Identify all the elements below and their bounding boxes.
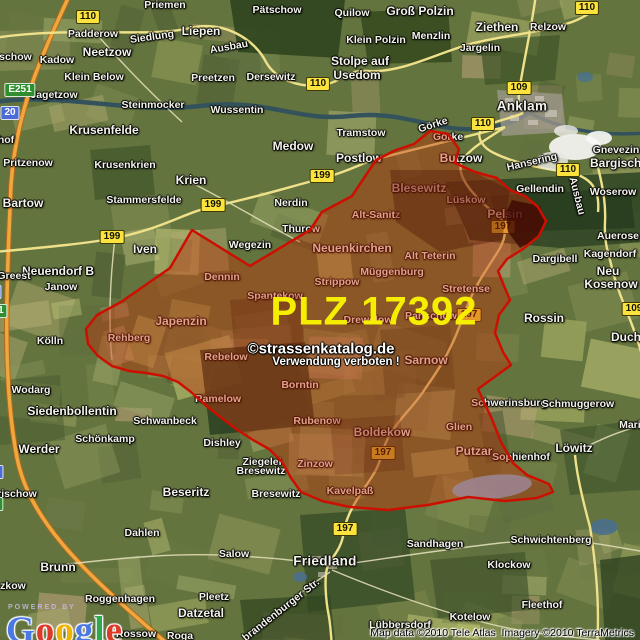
place-label: Butzow [440, 151, 483, 165]
place-label: Wegezin [229, 239, 271, 251]
place-label: Löwitz [555, 441, 592, 455]
place-label: Tramstow [336, 127, 385, 139]
place-label: Bargischow [590, 156, 640, 170]
google-logo-letter: g [75, 610, 95, 640]
google-logo-letter: e [106, 610, 123, 640]
place-label: Dennin [204, 271, 240, 283]
map-canvas[interactable]: PriemenPadderowSiedlungLiepenPätschowQui… [0, 0, 640, 640]
place-label: Ziethen [476, 20, 519, 34]
place-label: Wodarg [12, 384, 51, 396]
place-label: Priemen [144, 0, 185, 11]
labels-layer: PriemenPadderowSiedlungLiepenPätschowQui… [0, 0, 640, 640]
place-label: Neetzow [83, 45, 132, 59]
road-badge-197: 197 [371, 446, 396, 460]
place-label: Gellendin [516, 183, 564, 195]
google-logo-letter: G [6, 610, 36, 640]
place-label: Kadow [40, 54, 74, 66]
google-logo-letter: l [94, 610, 105, 640]
place-label: Ducherow [611, 330, 640, 344]
google-logo-letter: o [55, 610, 75, 640]
place-label: Jargelin [460, 42, 500, 54]
place-label: Iven [133, 242, 157, 256]
place-label: Ramelow [195, 393, 241, 405]
place-label: Schönkamp [75, 433, 135, 445]
place-label: Fleethof [522, 599, 563, 611]
place-label: Pritzenow [3, 157, 53, 169]
place-label: Krusenfelde [69, 123, 138, 137]
place-label: Bresewitz [251, 488, 300, 500]
place-label: Rehberg [108, 332, 151, 344]
place-label: Ausbau [567, 176, 588, 216]
place-label: Stretense [442, 283, 490, 295]
place-label: Steinmocker [121, 99, 184, 111]
place-label: rischow [0, 488, 37, 500]
place-label: Jagetzow [30, 89, 77, 101]
place-label: Werder [18, 442, 59, 456]
place-label: Relzow [530, 21, 566, 33]
place-label: Wussentin [211, 104, 264, 116]
place-label: zkow [0, 580, 26, 592]
place-label: Nerdin [274, 197, 307, 209]
road-badge-197: 197 [491, 220, 516, 234]
place-label: Stolpe auf [331, 54, 389, 68]
place-label: Borntin [281, 379, 318, 391]
road-badge-110: 110 [306, 77, 330, 91]
place-label: Pelsin [487, 207, 522, 221]
road-badge-E251: E251 [0, 304, 8, 318]
road-badge-110: 110 [575, 1, 599, 15]
road-badge-199: 199 [310, 169, 335, 183]
place-label: Schmuggerow [542, 398, 614, 410]
place-label: Spantekow [247, 290, 302, 302]
place-label: Neu [597, 264, 620, 278]
place-label: Glien [446, 421, 472, 433]
place-label: Auerose [597, 230, 639, 242]
place-label: Rubenow [293, 415, 340, 427]
place-label: Alt-Sanitz [352, 209, 400, 221]
place-label: Dahlen [124, 527, 159, 539]
road-badge-199: 199 [100, 230, 125, 244]
place-label: Preetzen [191, 72, 235, 84]
place-label: Anklam [497, 99, 548, 114]
google-logo-letter: o [36, 610, 56, 640]
place-label: Sophienhof [492, 451, 550, 463]
google-logo[interactable]: Google [6, 609, 123, 640]
place-label: Müggenburg [360, 266, 424, 278]
place-label: Medow [273, 139, 314, 153]
place-label: Datzetal [178, 606, 224, 620]
place-label: Groß Polzin [386, 4, 453, 18]
place-label: Salow [219, 548, 249, 560]
place-label: Klein Below [64, 71, 124, 83]
place-label: Schwerinsburg [471, 397, 547, 409]
place-label: Boldekow [354, 425, 411, 439]
place-label: brandenburger Str. [240, 576, 322, 640]
place-label: lschow [0, 51, 32, 63]
place-label: Lüskow [446, 194, 485, 206]
place-label: Schwichtenberg [510, 534, 591, 546]
place-label: Dishley [203, 437, 240, 449]
road-badge-E251: E251 [0, 497, 4, 511]
road-badge-109: 109 [622, 302, 640, 316]
place-label: Kagendorf [584, 248, 637, 260]
place-label: Siedlung [129, 28, 175, 46]
place-label: Menzlin [412, 30, 451, 42]
place-label: Siedenbollentin [27, 404, 116, 418]
place-label: Ausbau [209, 38, 249, 57]
road-badge-110: 110 [471, 117, 495, 131]
place-label: Woserow [590, 186, 636, 198]
road-badge-20: 20 [0, 465, 4, 479]
place-label: Krien [176, 173, 207, 187]
place-label: Bartow [3, 196, 44, 210]
place-label: Thurow [282, 223, 320, 235]
road-badge-20: 20 [0, 285, 2, 299]
place-label: Klein Polzin [346, 34, 406, 46]
road-badge-110: 110 [76, 10, 100, 24]
road-badge-20: 20 [0, 106, 19, 120]
place-label: Liepen [182, 24, 221, 38]
place-label: Pätschow [252, 4, 301, 16]
place-label: Friedland [293, 554, 356, 569]
place-label: Panschow [405, 310, 457, 322]
place-label: Beseritz [163, 485, 210, 499]
place-label: Usedom [333, 68, 380, 82]
place-label: Sandhagen [407, 538, 464, 550]
place-label: Putzar [456, 444, 493, 458]
place-label: Neuendorf B [22, 264, 94, 278]
place-label: Padderow [68, 28, 118, 40]
place-label: Kosenow [584, 277, 637, 291]
place-label: Lübbersdorf [369, 619, 431, 631]
place-label: Japenzin [155, 314, 206, 328]
road-badge-197: 197 [333, 522, 358, 536]
place-label: Kavelpaß [327, 485, 374, 497]
road-badge-197: 197 [457, 308, 482, 322]
place-label: Neuenkirchen [312, 241, 391, 255]
place-label: Schwanbeck [133, 415, 197, 427]
place-label: Rebelow [204, 351, 247, 363]
place-label: Kölln [37, 335, 63, 347]
place-label: Dargibell [533, 253, 578, 265]
place-label: Roga [167, 630, 193, 640]
place-label: hof [0, 134, 14, 146]
place-label: Bresewitz [236, 465, 285, 477]
place-label: Sarnow [404, 353, 447, 367]
place-label: Dersewitz [246, 71, 295, 83]
road-badge-199: 199 [201, 198, 226, 212]
place-label: Strippow [315, 276, 360, 288]
place-label: Krusenkrien [94, 159, 155, 171]
place-label: Hansering [506, 150, 559, 173]
place-label: Brunn [40, 560, 75, 574]
road-badge-109: 109 [507, 81, 532, 95]
place-label: Janow [45, 281, 78, 293]
place-label: Rossin [524, 311, 564, 325]
place-label: Zinzow [297, 458, 333, 470]
place-label: Marien [619, 419, 640, 431]
place-label: Greest [0, 270, 31, 282]
place-label: Stammersfelde [106, 194, 181, 206]
place-label: Postlow [336, 151, 382, 165]
place-label: Görke [433, 131, 463, 143]
place-label: Blesewitz [392, 181, 447, 195]
place-label: Drewelow [343, 314, 392, 326]
place-label: Roggenhagen [85, 593, 155, 605]
place-label: Alt Teterin [404, 250, 455, 262]
place-label: Klockow [487, 559, 530, 571]
place-label: Pleetz [199, 591, 229, 603]
place-label: Kotelow [450, 611, 491, 623]
place-label: Quilow [335, 7, 370, 19]
road-badge-110: 110 [556, 163, 580, 177]
place-label: Gnevezin [593, 144, 640, 156]
road-badge-E251: E251 [4, 83, 35, 97]
